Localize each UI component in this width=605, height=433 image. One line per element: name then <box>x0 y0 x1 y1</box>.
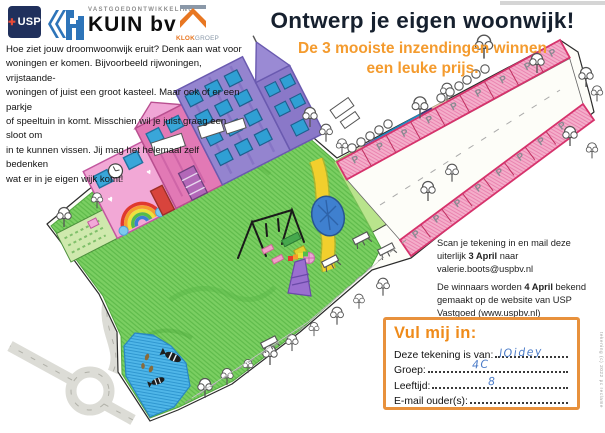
fill-in-box: Vul mij in: Deze tekening is van: lOidey… <box>383 317 580 410</box>
dotted-line: lOidey <box>495 356 568 358</box>
handwritten-group: 4C <box>471 358 489 372</box>
page-subtitle: De 3 mooiste inzendingen winnen een leuk… <box>250 39 595 79</box>
klok-name-light: GROEP <box>195 35 219 42</box>
logo-row: ✚ USP VASTGOEDONTWIKKELING KUIN bv KLOKG… <box>0 0 240 42</box>
dotted-line: 4C <box>428 371 568 373</box>
klok-chevron-icon <box>178 5 208 29</box>
dotted-line: 8 <box>432 387 568 389</box>
klokgroep-logo: KLOKGROEP <box>176 5 210 42</box>
klok-name: KLOKGROEP <box>176 35 210 42</box>
field-label-group: Groep: <box>394 365 426 376</box>
usp-plus-icon: ✚ <box>8 17 16 28</box>
field-label-email: E-mail ouder(s): <box>394 396 468 407</box>
form-field-age: Leeftijd: 8 <box>394 376 569 392</box>
form-field-group: Groep: 4C <box>394 361 569 377</box>
handwritten-age: 8 <box>488 374 497 387</box>
scan-deadline: 3 April <box>469 251 498 261</box>
winners-date: 4 April <box>524 282 553 292</box>
dotted-line <box>470 402 568 404</box>
winners-note: De winnaars worden 4 April bekend gemaak… <box>437 281 605 320</box>
winners-text: De winnaars worden <box>437 282 524 292</box>
intro-paragraph: Hoe ziet jouw droomwoonwijk eruit? Denk … <box>6 43 242 187</box>
scan-artifact <box>500 1 605 5</box>
form-field-email: E-mail ouder(s): <box>394 392 569 408</box>
field-label-age: Leeftijd: <box>394 381 430 392</box>
handwritten-name: lOidey <box>499 344 544 359</box>
kuin-logo-icon <box>46 8 84 40</box>
usp-logo: ✚ USP <box>8 6 41 38</box>
klok-name-bold: KLOK <box>176 35 195 42</box>
page-title: Ontwerp je eigen woonwijk! <box>240 8 605 34</box>
usp-label: USP <box>18 16 41 28</box>
form-title: Vul mij in: <box>394 324 569 343</box>
sidenote-vertical: tekening (c) 2022 pc reclame <box>599 332 604 408</box>
flyer-page: ♥ ♥ <box>0 0 605 433</box>
scan-instructions: Scan je tekening in en mail deze uiterli… <box>437 237 605 276</box>
